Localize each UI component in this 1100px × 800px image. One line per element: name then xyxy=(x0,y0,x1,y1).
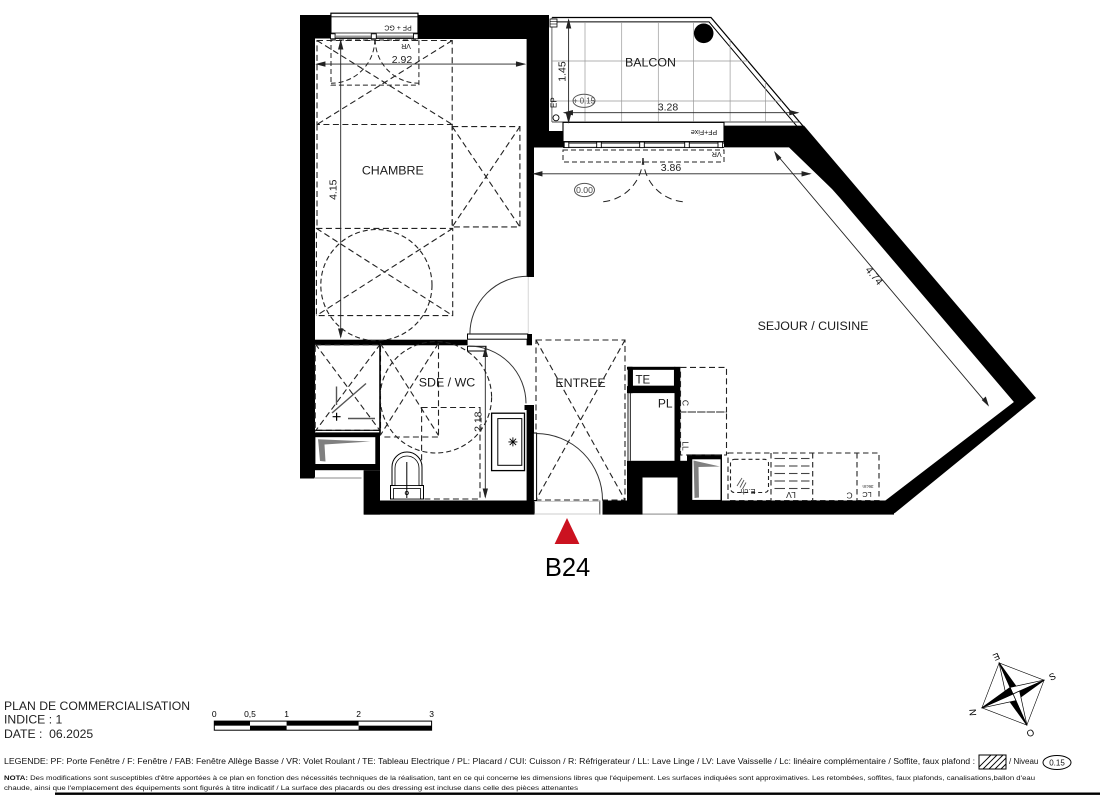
svg-text:1.45: 1.45 xyxy=(557,61,569,82)
svg-text:NOTA: Des modifications sont: NOTA: Des modifications sont susceptible… xyxy=(4,775,1035,782)
svg-text:SEJOUR / CUISINE: SEJOUR / CUISINE xyxy=(758,319,869,333)
svg-text:chaude, ainsi que l'emplacemen: chaude, ainsi que l'emplacement des équi… xyxy=(4,785,579,792)
svg-text:LL: LL xyxy=(680,441,690,451)
svg-text:PF+Fixe: PF+Fixe xyxy=(691,128,717,135)
svg-text:N: N xyxy=(968,708,979,716)
svg-text:+ 0.15: + 0.15 xyxy=(573,96,596,105)
svg-text:4.15: 4.15 xyxy=(328,179,340,200)
svg-text:ENTREE: ENTREE xyxy=(555,376,605,390)
svg-text:LV: LV xyxy=(786,490,796,500)
svg-text:1: 1 xyxy=(284,709,289,719)
svg-text:PL: PL xyxy=(658,397,673,411)
svg-text:0.15: 0.15 xyxy=(1049,759,1065,768)
svg-text:BALCON: BALCON xyxy=(625,56,676,70)
svg-text:SDE / WC: SDE / WC xyxy=(419,376,475,390)
svg-text:2.18: 2.18 xyxy=(473,411,485,432)
svg-text:EP: EP xyxy=(550,97,559,108)
svg-text:TE: TE xyxy=(636,374,651,386)
svg-text:0: 0 xyxy=(212,709,217,719)
svg-text:PLAN DE COMMERCIALISATION: PLAN DE COMMERCIALISATION xyxy=(4,699,190,713)
svg-text:B24: B24 xyxy=(545,554,590,582)
svg-text:2.92: 2.92 xyxy=(392,54,413,66)
svg-text:INDICE : 1: INDICE : 1 xyxy=(4,713,62,727)
svg-text:/ Niveau: / Niveau xyxy=(1009,757,1038,766)
svg-text:3.28: 3.28 xyxy=(658,102,679,114)
svg-text:LC: LC xyxy=(862,490,872,499)
svg-text:VR: VR xyxy=(401,42,411,49)
svg-text:E.ch: E.ch xyxy=(740,487,755,496)
svg-text:2: 2 xyxy=(356,709,361,719)
svg-text:LEGENDE: PF: Porte Fenêtre / F: LEGENDE: PF: Porte Fenêtre / F: Fenêtre … xyxy=(4,757,975,766)
svg-text:C: C xyxy=(680,400,690,406)
svg-text:0.00: 0.00 xyxy=(576,185,593,195)
svg-text:CHAMBRE: CHAMBRE xyxy=(362,164,424,178)
svg-text:C: C xyxy=(846,491,852,501)
svg-text:3.86: 3.86 xyxy=(661,162,682,174)
svg-text:VR: VR xyxy=(712,150,722,157)
svg-text:DATE : 06.2025: DATE : 06.2025 xyxy=(4,727,93,741)
svg-text:3: 3 xyxy=(429,709,434,719)
svg-text:0,5: 0,5 xyxy=(244,709,256,719)
svg-text:36cm: 36cm xyxy=(862,484,873,489)
svg-text:PF + GC: PF + GC xyxy=(384,23,411,30)
